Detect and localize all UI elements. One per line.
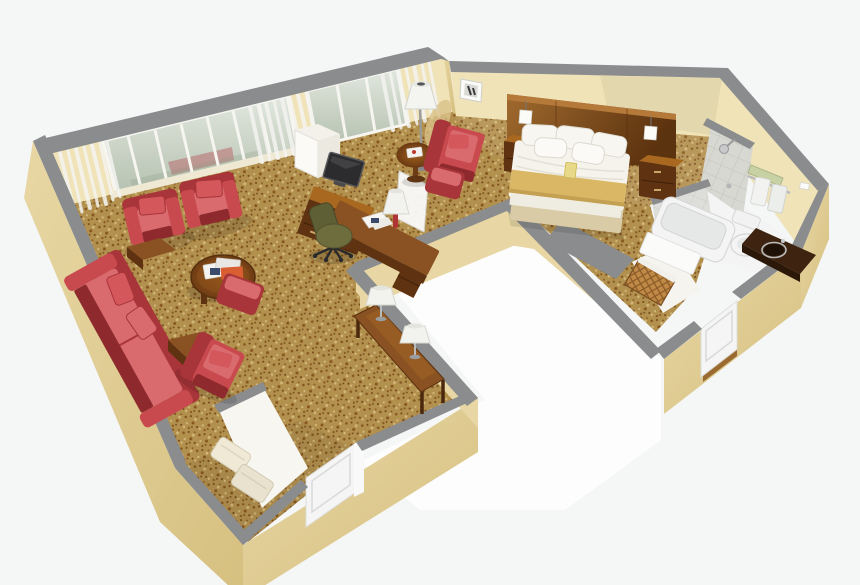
floor-plan-stage bbox=[0, 0, 860, 585]
armchair-pillow bbox=[138, 196, 166, 216]
welcome-card bbox=[564, 162, 577, 178]
double-bed bbox=[505, 120, 637, 240]
wall-outlet bbox=[800, 182, 810, 189]
paper-photo bbox=[371, 218, 379, 223]
armchair-pillow bbox=[195, 179, 222, 198]
shower-valve bbox=[727, 184, 732, 189]
lamp-shade bbox=[366, 288, 396, 305]
office-chair-seat bbox=[316, 224, 352, 248]
floor-lamp-top-hole bbox=[417, 82, 425, 85]
magazine-photo bbox=[210, 268, 220, 275]
wall-art bbox=[460, 79, 482, 102]
desk-lamp-top bbox=[389, 189, 403, 194]
floor-plan-rendering bbox=[0, 0, 860, 585]
lamp-shade bbox=[400, 326, 430, 343]
bedroom-chair-pillow bbox=[449, 134, 469, 148]
faucet bbox=[781, 239, 785, 243]
sink-basin bbox=[764, 244, 784, 256]
